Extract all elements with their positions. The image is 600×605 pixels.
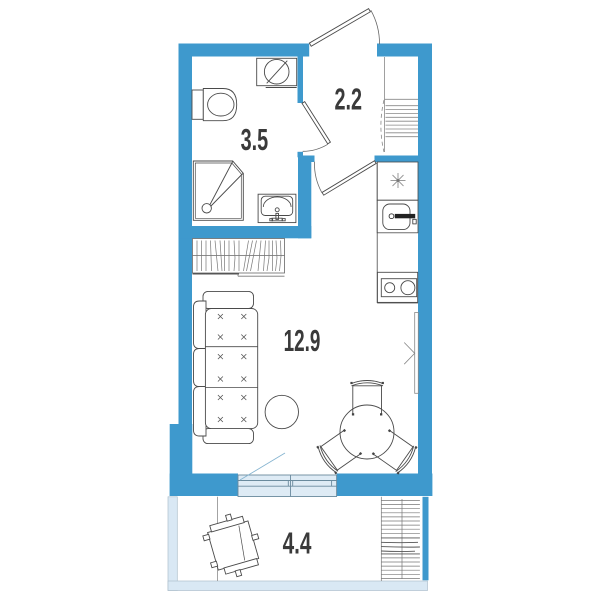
svg-text:12.9: 12.9 (284, 324, 321, 358)
svg-text:4.4: 4.4 (283, 526, 312, 561)
svg-text:2.2: 2.2 (334, 84, 362, 117)
svg-text:3.5: 3.5 (241, 124, 269, 157)
